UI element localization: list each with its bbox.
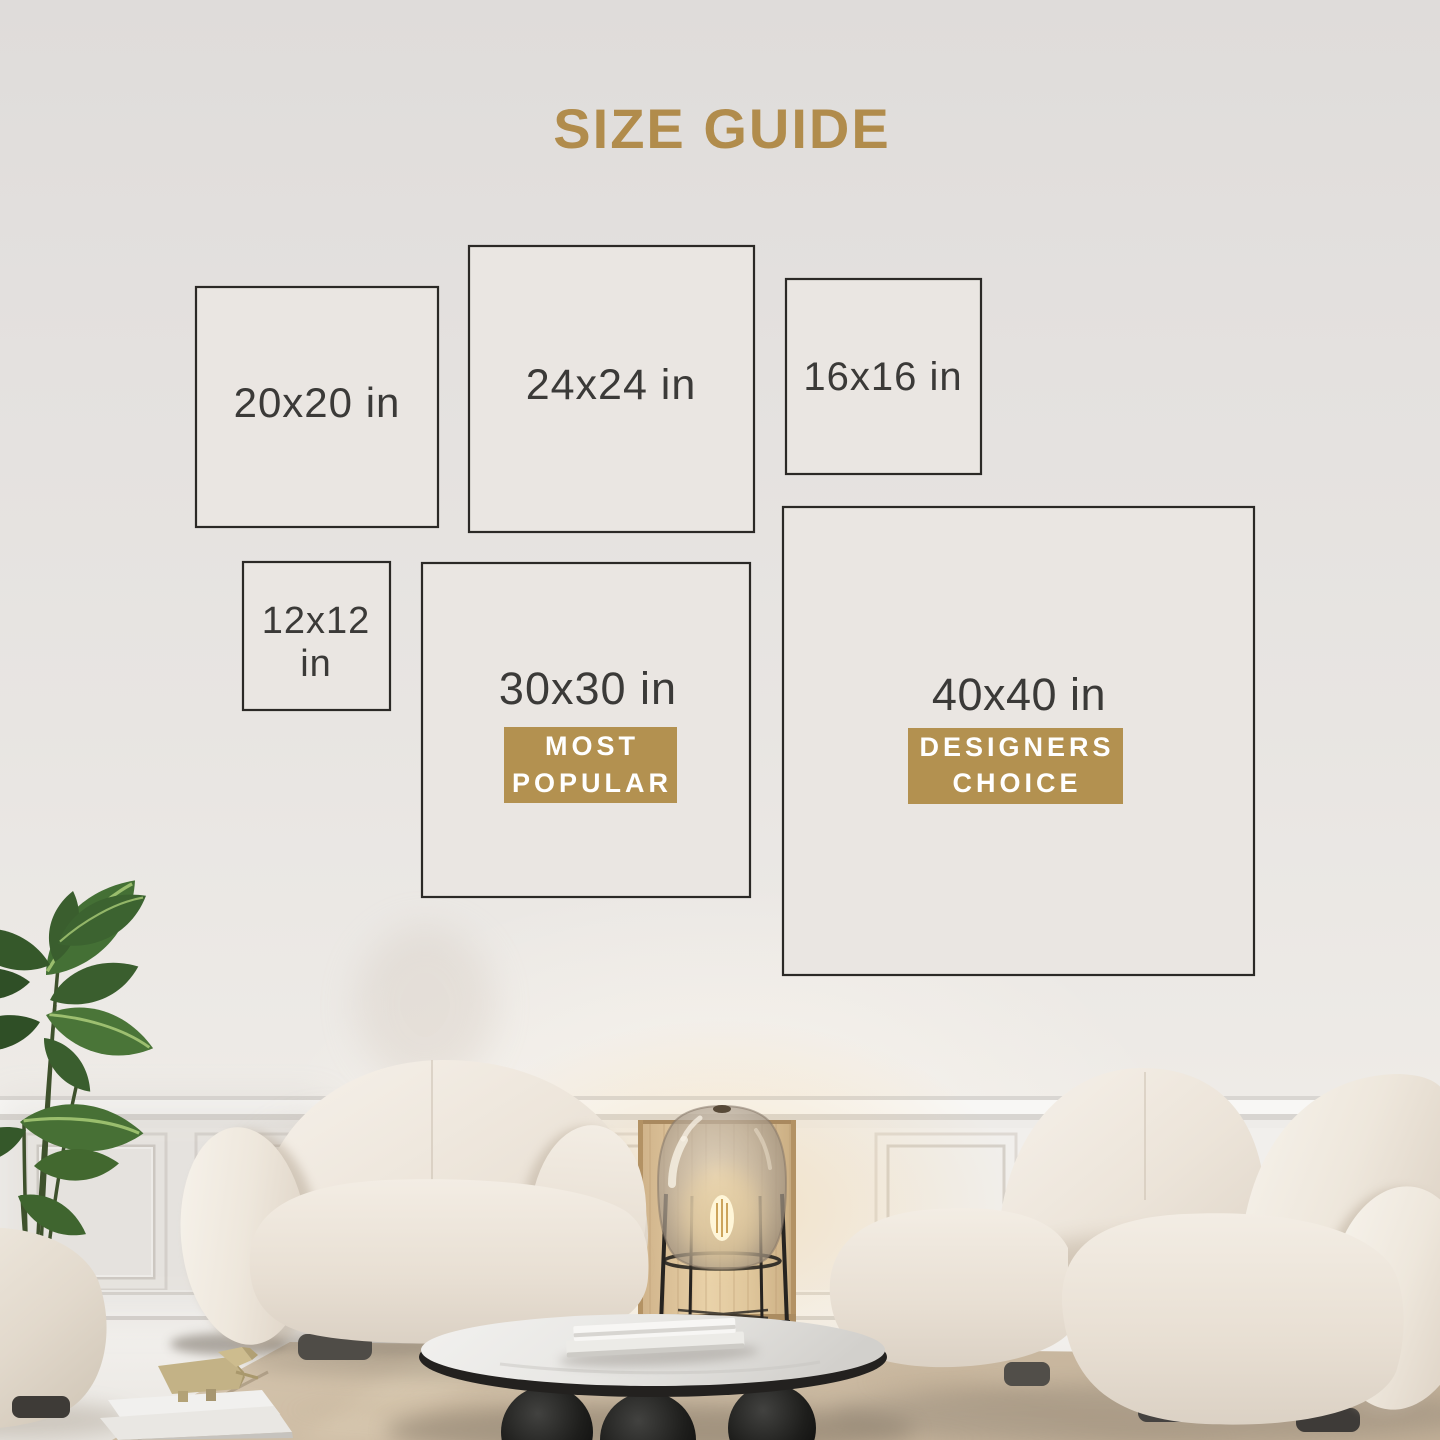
svg-text:MOST: MOST — [545, 731, 639, 761]
svg-text:12x12: 12x12 — [262, 600, 371, 642]
svg-text:in: in — [300, 643, 332, 685]
svg-text:16x16 in: 16x16 in — [803, 355, 962, 399]
svg-text:DESIGNERS: DESIGNERS — [919, 732, 1114, 762]
svg-text:20x20 in: 20x20 in — [234, 379, 401, 426]
svg-text:40x40 in: 40x40 in — [932, 669, 1106, 720]
svg-text:SIZE GUIDE: SIZE GUIDE — [553, 97, 890, 160]
svg-text:CHOICE: CHOICE — [952, 768, 1081, 798]
svg-text:24x24 in: 24x24 in — [526, 361, 697, 409]
svg-text:30x30 in: 30x30 in — [499, 663, 677, 714]
svg-text:POPULAR: POPULAR — [512, 768, 672, 798]
